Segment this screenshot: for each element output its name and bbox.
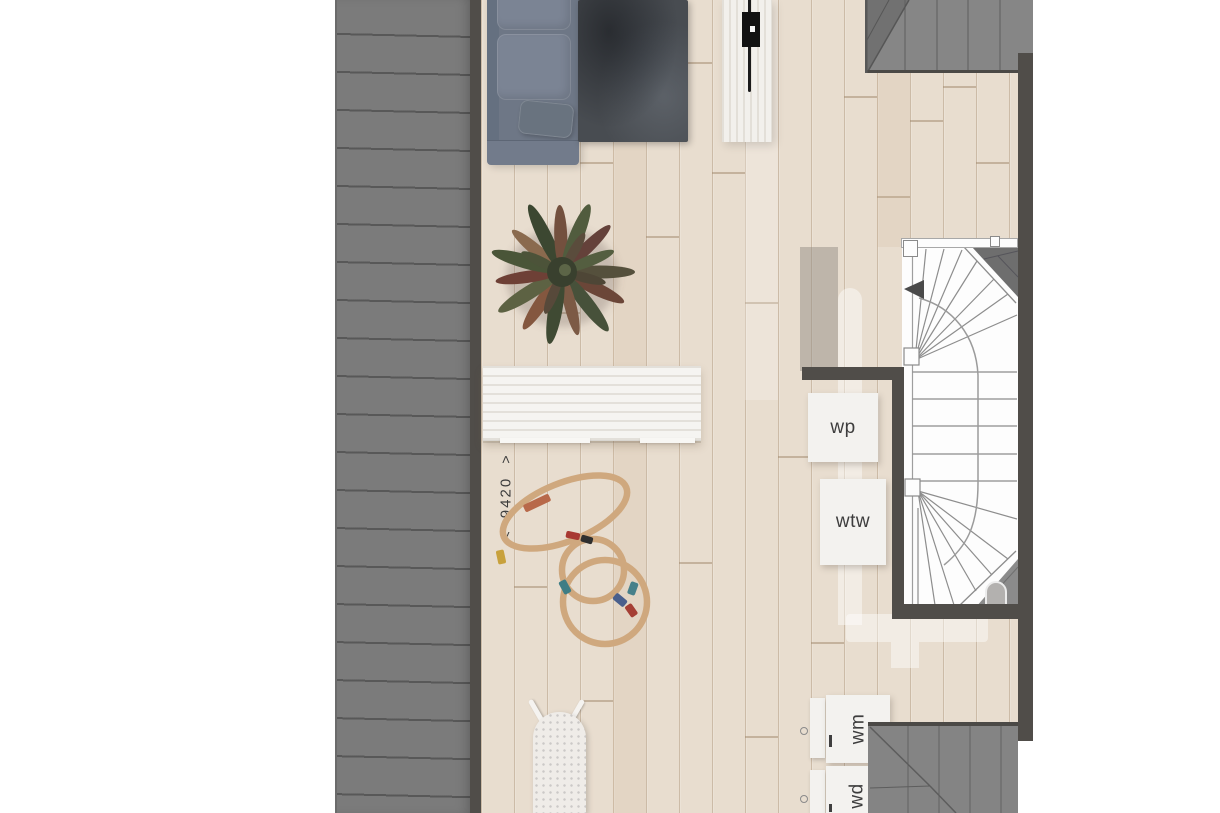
roof-bottom-right [868, 722, 1018, 813]
newel-post [904, 348, 919, 365]
heat-pump-unit: wp [808, 393, 878, 462]
appliance-door [810, 770, 825, 813]
ironing-board [533, 712, 586, 813]
tv-detail [750, 26, 755, 32]
appliance-handle [829, 735, 832, 747]
roof-cut-triangle [972, 247, 1018, 297]
duct-zone-stub [891, 642, 919, 668]
plank-joint [877, 196, 910, 198]
throw-pillow [517, 99, 574, 138]
interior-wall [892, 604, 1033, 619]
dryer-label: wd [847, 783, 869, 808]
plank-joint [745, 736, 778, 738]
landing-detail [990, 236, 1000, 247]
exterior-wall [1018, 53, 1033, 741]
plank-joint [844, 96, 877, 98]
plank-joint [943, 86, 976, 88]
stair-landing-edge [901, 238, 1018, 248]
sofa-cushion [497, 34, 571, 100]
staircase [902, 247, 1018, 607]
appliance-door [810, 698, 825, 758]
heat-recovery-label: wtw [836, 511, 870, 533]
plank-joint [646, 236, 679, 238]
plank-joint [910, 120, 943, 122]
newel-post [903, 240, 918, 257]
direction-arrow-icon [904, 280, 924, 299]
table-edge-detail [640, 438, 695, 443]
sofa-armrest [487, 140, 579, 165]
plank-joint [580, 700, 613, 702]
washing-machine-label: wm [847, 714, 869, 745]
heat-pump-label: wp [830, 417, 855, 439]
table-edge-detail [500, 438, 590, 443]
plank-joint [811, 642, 844, 644]
sofa [487, 0, 579, 164]
heat-recovery-unit: wtw [820, 479, 886, 565]
newel-post [905, 479, 920, 496]
stair-treads [913, 372, 1018, 481]
roof-terrace-deck [335, 0, 472, 813]
roof-top-right [865, 0, 1033, 73]
floor-plan: < 9420 > wp wtw [0, 0, 1220, 813]
plank-joint [976, 162, 1009, 164]
plank-joint [712, 172, 745, 174]
sofa-cushion [497, 0, 571, 30]
plank-joint [745, 302, 778, 304]
plank-joint [778, 456, 811, 458]
dining-table [483, 366, 701, 441]
toy-train-track [493, 466, 655, 651]
interior-wall [802, 367, 904, 380]
interior-wall [892, 371, 904, 619]
door-hinge [800, 727, 808, 735]
plank-joint [679, 562, 712, 564]
dimension-arrow-right-icon: > [498, 455, 514, 463]
rug [578, 0, 688, 142]
plank-joint [580, 162, 613, 164]
appliance-handle [829, 804, 832, 812]
door-hinge [800, 795, 808, 803]
plant [487, 197, 637, 347]
